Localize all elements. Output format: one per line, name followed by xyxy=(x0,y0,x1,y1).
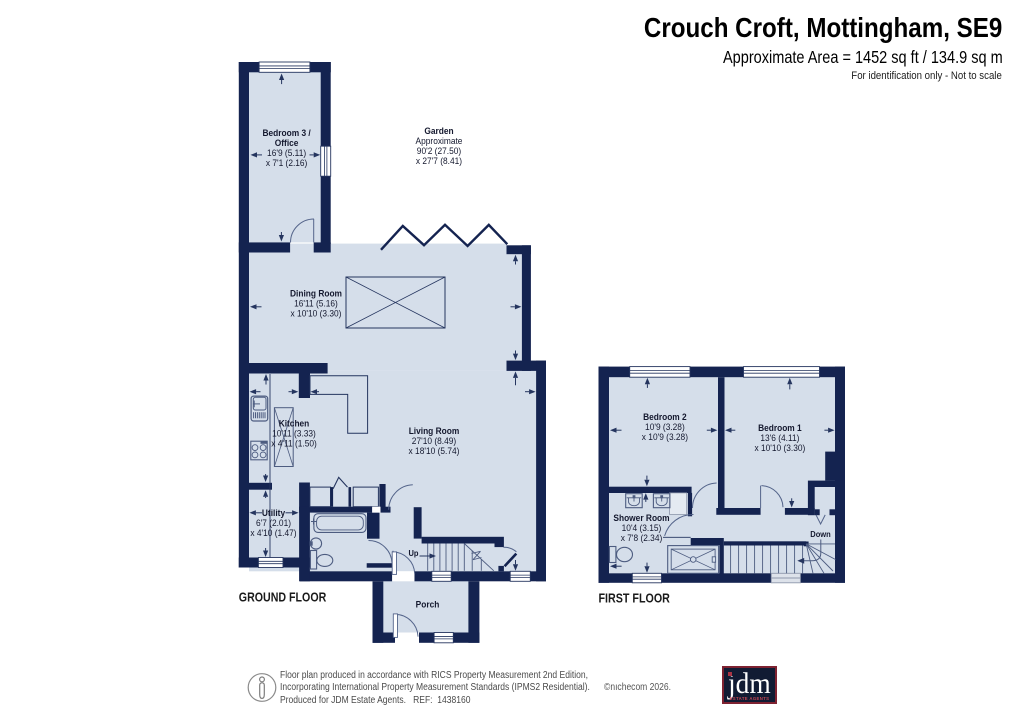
svg-text:Porch: Porch xyxy=(416,599,440,610)
svg-text:x 4'11 (1.50): x 4'11 (1.50) xyxy=(271,438,317,449)
svg-text:x 4'10 (1.47): x 4'10 (1.47) xyxy=(250,528,296,539)
svg-text:x 10'10 (3.30): x 10'10 (3.30) xyxy=(754,443,805,454)
svg-text:x 7'8 (2.34): x 7'8 (2.34) xyxy=(621,533,663,544)
svg-text:x 7'1 (2.16): x 7'1 (2.16) xyxy=(266,158,308,169)
svg-text:x 27'7 (8.41): x 27'7 (8.41) xyxy=(416,156,462,167)
svg-text:GROUND FLOOR: GROUND FLOOR xyxy=(239,589,327,604)
svg-text:Up: Up xyxy=(409,548,419,558)
svg-text:x 10'9 (3.28): x 10'9 (3.28) xyxy=(642,432,688,443)
svg-text:Down: Down xyxy=(810,529,831,539)
svg-text:x 10'10 (3.30): x 10'10 (3.30) xyxy=(291,309,342,320)
svg-text:FIRST FLOOR: FIRST FLOOR xyxy=(599,591,671,606)
svg-text:x 18'10 (5.74): x 18'10 (5.74) xyxy=(409,446,460,457)
